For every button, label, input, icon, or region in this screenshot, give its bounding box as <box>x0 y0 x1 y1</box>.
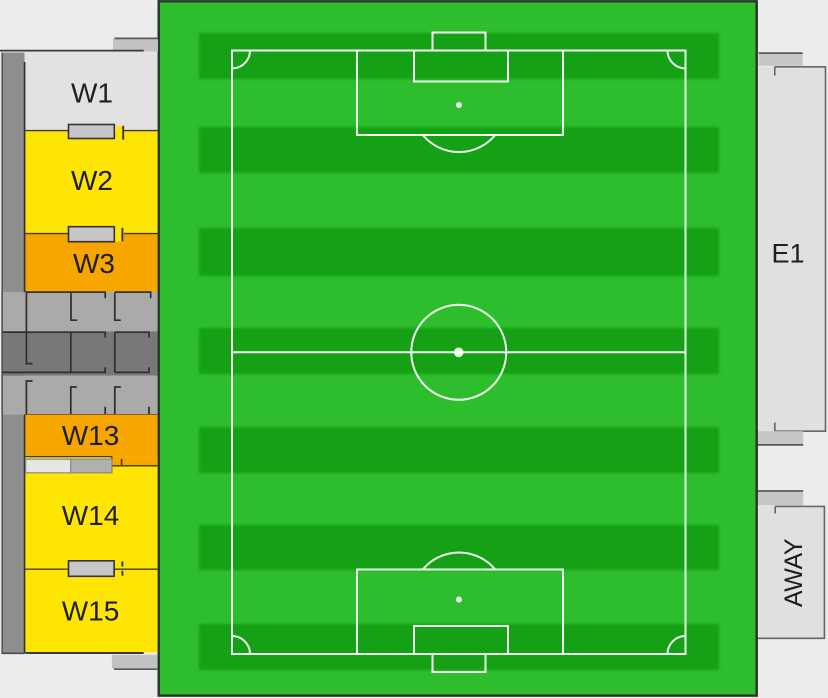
svg-text:E1: E1 <box>771 239 804 269</box>
svg-text:W15: W15 <box>62 596 120 627</box>
svg-text:W14: W14 <box>62 500 120 531</box>
svg-text:AWAY: AWAY <box>780 538 808 607</box>
svg-text:W13: W13 <box>62 420 120 451</box>
svg-text:W3: W3 <box>73 248 115 279</box>
svg-text:W2: W2 <box>71 165 113 196</box>
svg-text:W1: W1 <box>71 78 113 109</box>
